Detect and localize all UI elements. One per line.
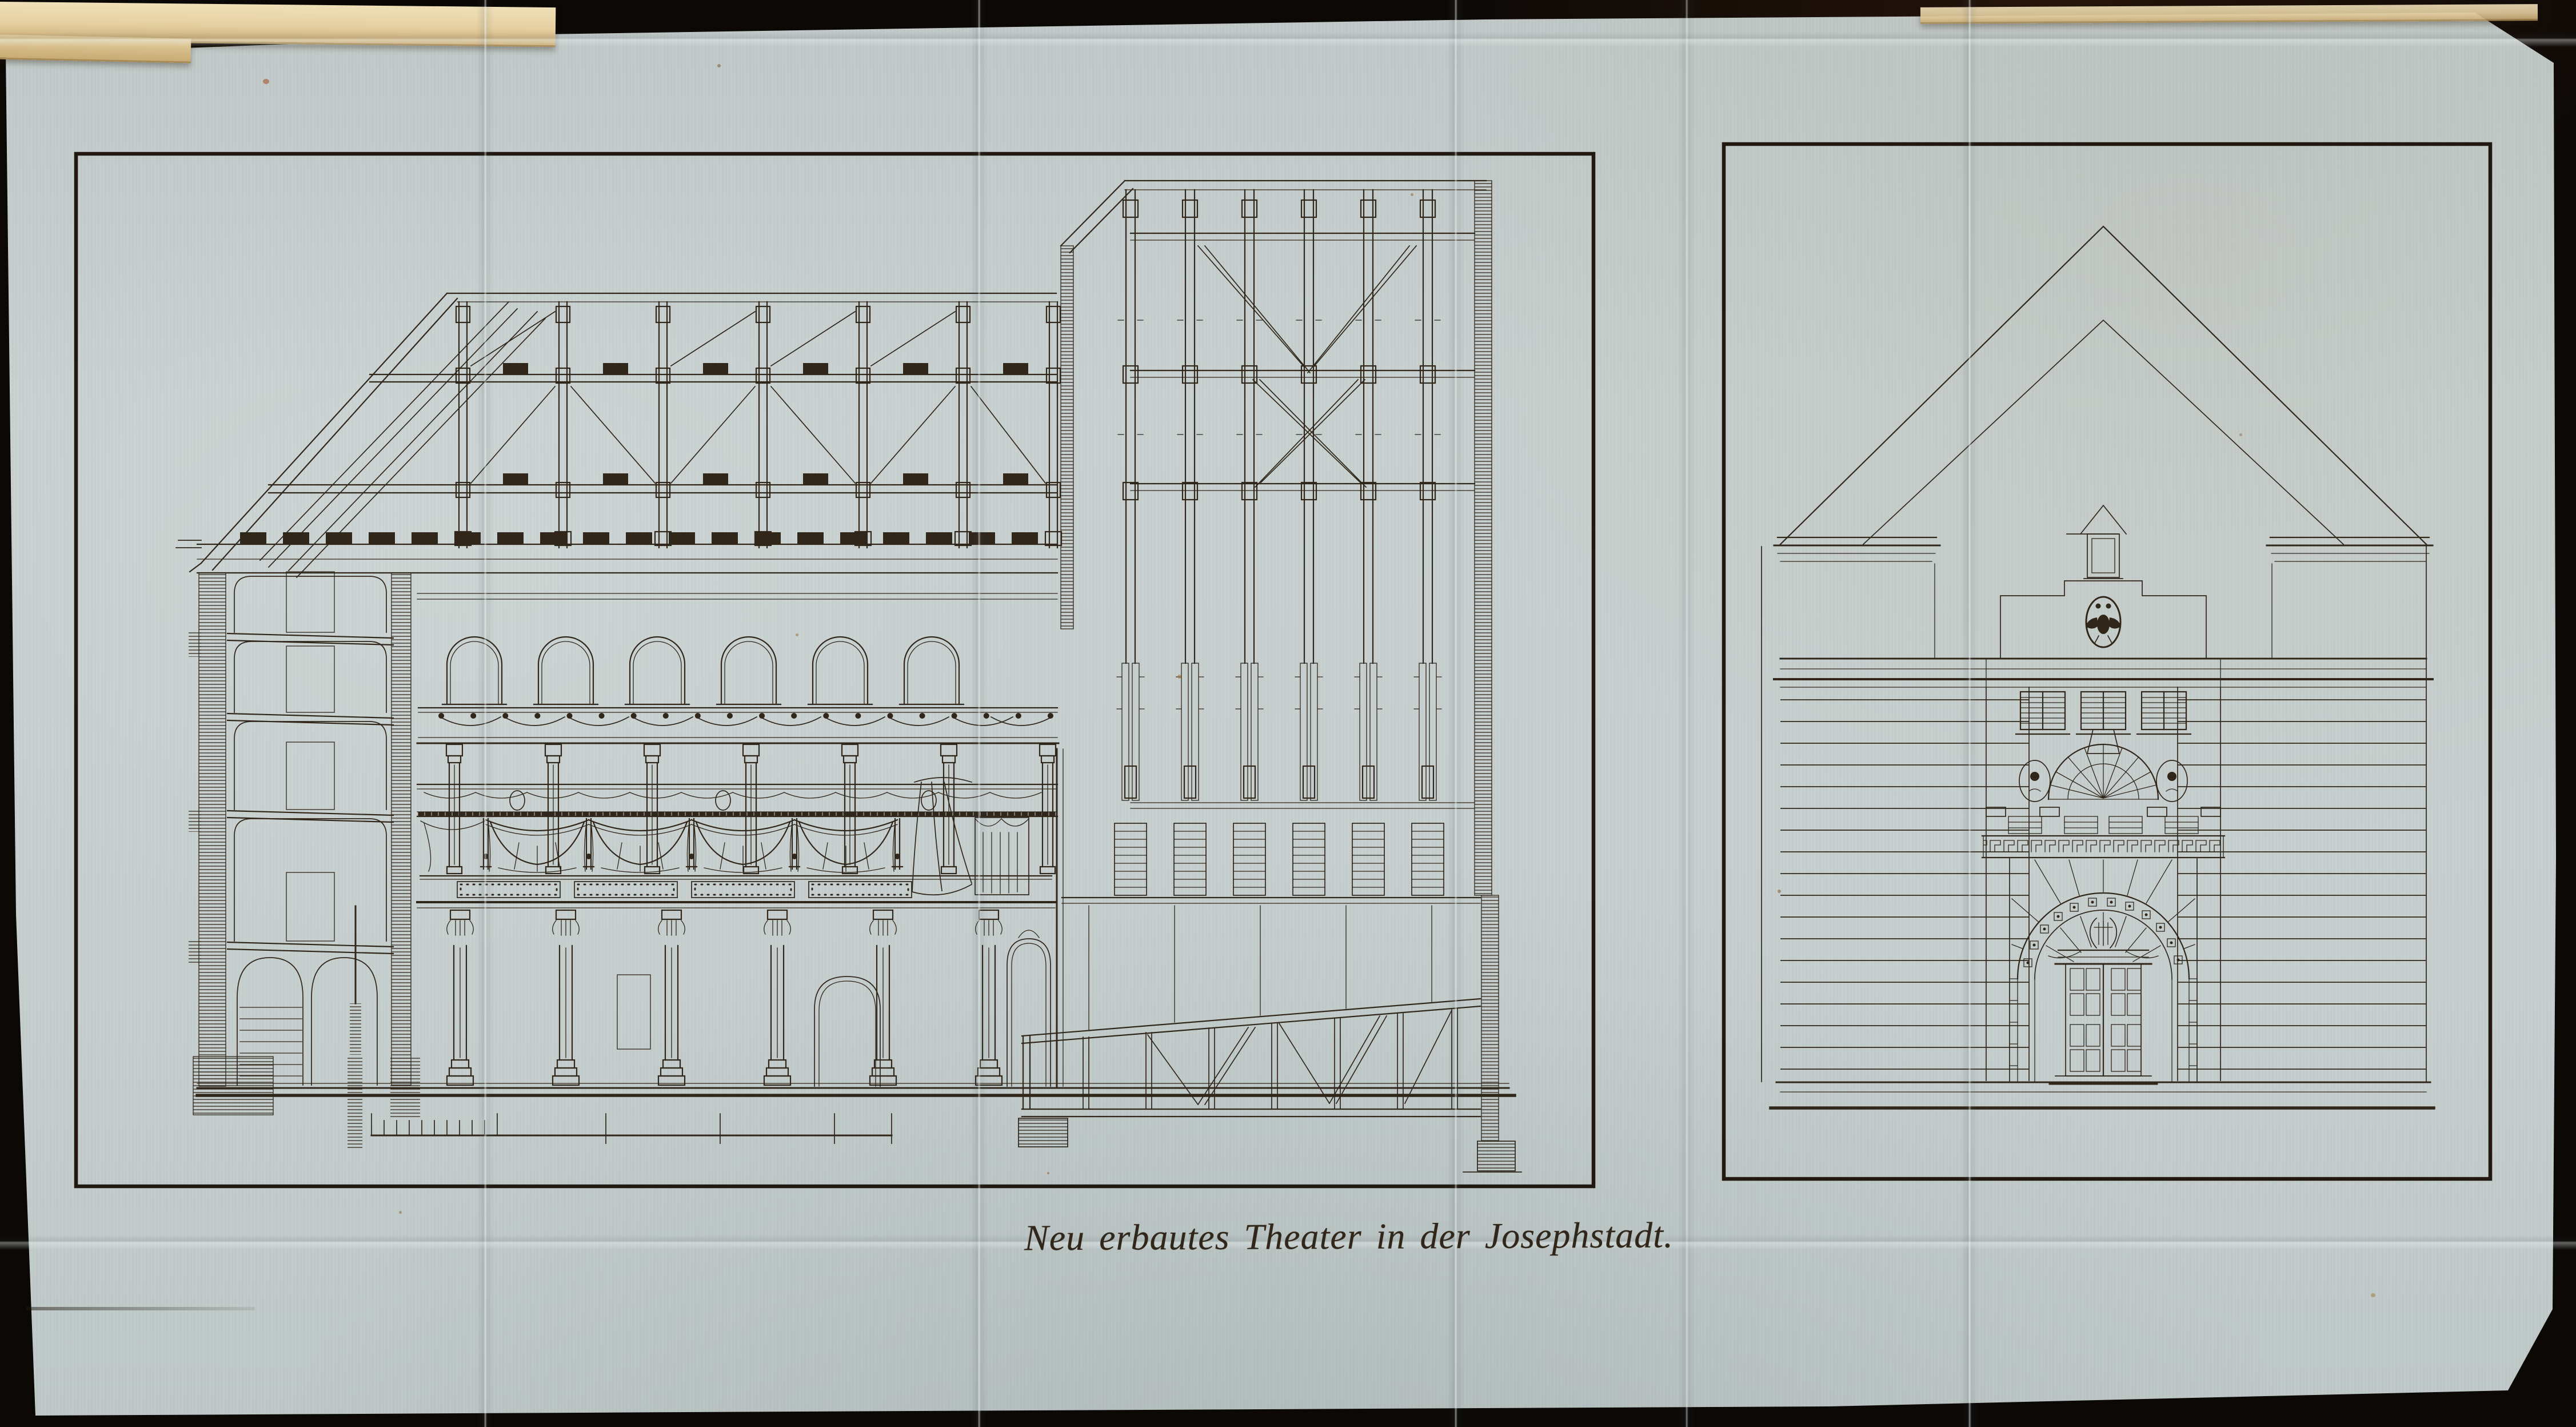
stain-spot: [796, 633, 798, 636]
gallery-colonnade: [417, 744, 1057, 874]
stain-spot: [2371, 1293, 2375, 1297]
stain-spot: [2239, 433, 2242, 436]
entablature-frieze: [417, 708, 1059, 743]
stain-spot: [263, 79, 269, 84]
attic-eagle-emblem: [2000, 581, 2206, 659]
vertical-crease: [1447, 0, 1464, 1427]
vertical-crease: [1678, 0, 1695, 1427]
facade-base: [1771, 1082, 2434, 1108]
understage-truss: [1019, 999, 1480, 1147]
balcony-panels: [417, 876, 1055, 908]
stain-spot: [717, 64, 721, 67]
lyre-ornament: [2048, 918, 2158, 958]
plate-caption: Neu erbautes Theater in der Josephstadt.: [1023, 1214, 1675, 1259]
vertical-crease: [477, 0, 494, 1427]
ground-line: [197, 1083, 1521, 1172]
left-plate-border: [76, 154, 1593, 1186]
facade-elevation: [1762, 226, 2434, 1108]
entrance-door: [2050, 950, 2157, 1084]
stain-spot: [1778, 890, 1781, 893]
stage-ladders: [1007, 823, 1480, 1086]
stain-spot: [399, 1211, 402, 1214]
theater-cross-section: [176, 181, 1521, 1172]
stain-spot: [1177, 675, 1181, 679]
stain-spot: [1411, 193, 1413, 196]
engraved-plate: [0, 0, 2576, 1427]
stain-spot: [1047, 1172, 1049, 1174]
crease-shadow-line: [26, 1307, 255, 1310]
scanned-plate-page: Neu erbautes Theater in der Josephstadt.: [0, 0, 2576, 1427]
meander-frieze: [1982, 836, 2224, 858]
facade-windows: [2016, 692, 2191, 734]
facade-cornice: [1774, 659, 2433, 687]
left-wall-section: [189, 572, 420, 1150]
vertical-crease: [1961, 0, 1978, 1427]
roof-truss: [176, 293, 1061, 577]
vertical-crease: [971, 0, 988, 1427]
auditorium-upper-windows: [417, 593, 1057, 704]
horizontal-crease: [0, 32, 2576, 47]
roof-dormer: [2067, 505, 2126, 579]
scale-bar: [372, 1114, 892, 1143]
